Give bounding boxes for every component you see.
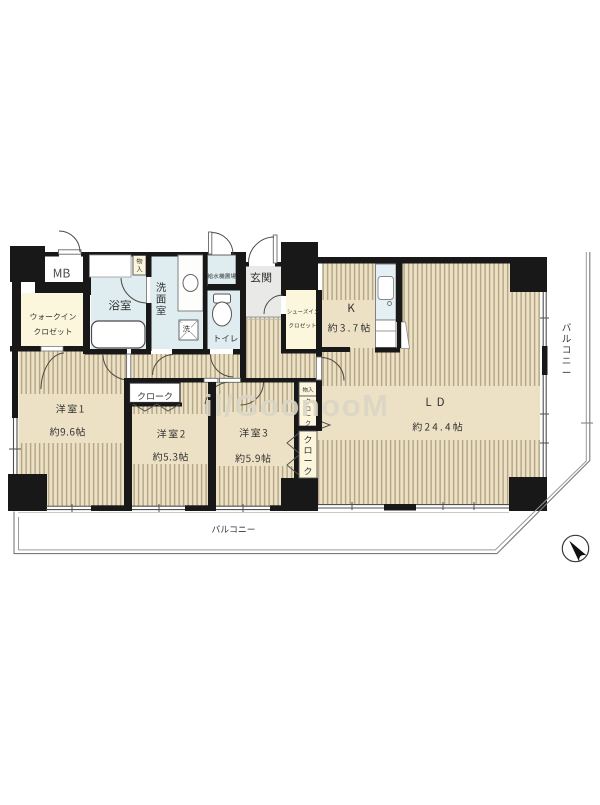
svg-text:il/GoonooM: il/GoonooM [204, 388, 388, 423]
